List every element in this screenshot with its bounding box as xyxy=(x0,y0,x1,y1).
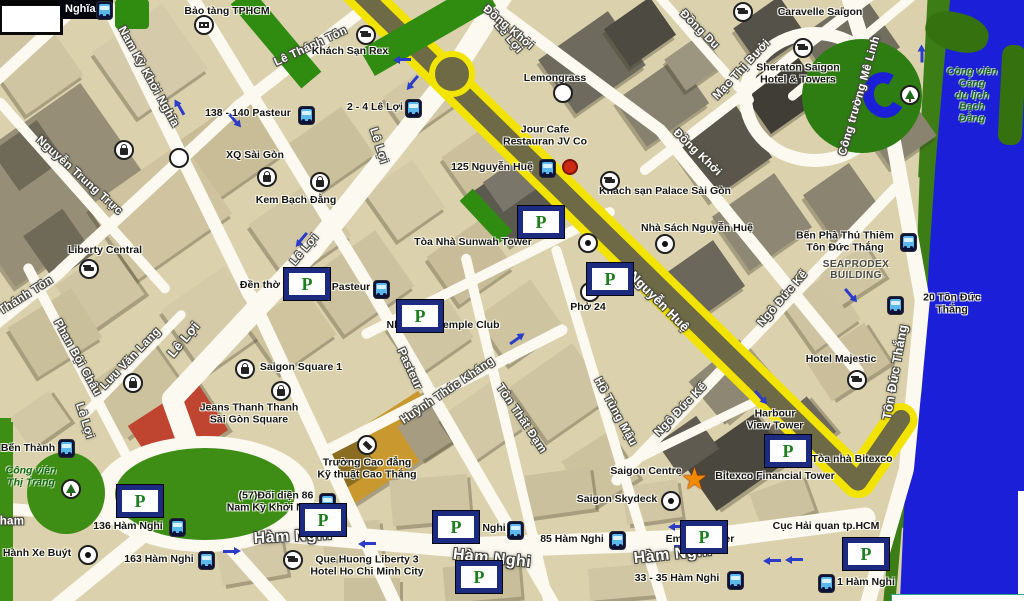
building xyxy=(365,160,446,241)
poi-label: Tòa nhà Bitexco xyxy=(811,454,892,466)
street-label: Thánh Tôn xyxy=(0,274,55,317)
one-way-arrow xyxy=(754,389,764,400)
road-ton-duc-thang xyxy=(884,132,930,308)
street-label: Nguyễn Huệ xyxy=(626,269,692,335)
bus-stop-icon[interactable] xyxy=(818,574,835,593)
bus-stop-icon[interactable] xyxy=(405,99,422,118)
one-way-arrow xyxy=(177,103,186,115)
poi-label: XQ Sài Gòn xyxy=(226,150,284,162)
street-label: Lê Lợi xyxy=(366,127,390,166)
shore-strip-3 xyxy=(891,382,929,528)
poi-label: Liberty Central xyxy=(68,245,142,257)
building xyxy=(483,156,541,212)
bus-stop-icon[interactable] xyxy=(900,233,917,252)
street-label: Công trường Mê Linh xyxy=(837,35,883,158)
poi-label: Khách sạn Palace Sài Gòn xyxy=(599,186,731,198)
building xyxy=(749,475,815,530)
parking-marker[interactable]: P xyxy=(587,263,633,295)
bus-stop-name-pill[interactable]: Nghĩa xyxy=(60,0,101,19)
parking-marker[interactable]: P xyxy=(433,511,479,543)
building xyxy=(510,343,610,441)
building xyxy=(8,288,102,377)
building xyxy=(441,124,518,200)
bus-stop-icon[interactable] xyxy=(198,551,215,570)
poi-label: 1 Hàm Nghi xyxy=(837,577,895,589)
road-ton-duc-thang xyxy=(898,293,930,478)
one-way-arrow xyxy=(399,58,411,61)
parking-glyph: P xyxy=(451,518,462,536)
one-way-arrow xyxy=(409,74,419,85)
road-nguyen-hue-core xyxy=(846,406,914,494)
street-label: Ngô Đức Kế xyxy=(652,381,710,440)
building xyxy=(689,339,776,424)
parking-marker[interactable]: P xyxy=(300,504,346,536)
road-le-thanh-ton xyxy=(232,0,403,113)
parking-marker[interactable]: P xyxy=(456,561,502,593)
le-loi-median-green xyxy=(231,0,322,88)
building xyxy=(0,5,83,115)
road-tran-hung-dao xyxy=(48,528,150,601)
far-bank-green-2 xyxy=(997,44,1024,145)
one-way-arrow xyxy=(791,558,803,561)
one-way-arrow xyxy=(298,231,308,242)
parking-glyph: P xyxy=(861,545,872,563)
building xyxy=(344,578,400,601)
bus-stop-icon[interactable] xyxy=(507,521,524,540)
green-strip-left xyxy=(0,418,11,446)
street-label: Pasteur xyxy=(394,346,424,392)
poi-label: Khách Sạn Rex xyxy=(312,46,388,58)
building xyxy=(863,96,936,167)
street-label: Tôn Thất Đạm xyxy=(493,382,549,456)
poi-label: 136 Hàm Nghi xyxy=(93,521,162,533)
green-strip-left xyxy=(0,422,13,601)
road-ngo-duc-ke xyxy=(609,181,903,488)
one-way-arrow xyxy=(364,542,376,545)
road-nguyen-hue-core xyxy=(343,0,870,494)
street-label: Nam Kỳ Khởi Nghĩa xyxy=(115,24,181,129)
parking-marker[interactable]: P xyxy=(518,206,564,238)
map-canvas[interactable]: Nam Kỳ Khởi NghĩaLê Thánh TônThánh TônNg… xyxy=(0,0,1024,601)
building xyxy=(712,173,812,271)
bus-stop-icon[interactable] xyxy=(96,1,113,20)
road-le-loi xyxy=(159,388,211,485)
road-hai-trieu xyxy=(612,386,780,474)
poi-label: Nghi xyxy=(482,523,505,535)
street-label: Đồng Khởi xyxy=(670,127,724,179)
bus-stop-icon[interactable] xyxy=(58,439,75,458)
hotel-icon[interactable] xyxy=(600,171,620,191)
road-le-loi xyxy=(158,238,324,414)
building xyxy=(588,563,657,601)
poi-label: Tòa Nhà Sunwah Tower xyxy=(414,237,532,249)
building xyxy=(161,266,270,375)
parking-marker[interactable]: P xyxy=(843,538,889,570)
parking-glyph: P xyxy=(783,442,794,460)
park-label: Công viên Thị Trang xyxy=(6,465,57,489)
road-le-thanh-ton xyxy=(52,97,248,280)
street-label: ham xyxy=(0,516,24,529)
poi-label: Saigon Square 1 xyxy=(260,362,342,374)
road-le-loi xyxy=(296,60,466,266)
dot-icon[interactable] xyxy=(655,234,675,254)
hotel-icon[interactable] xyxy=(283,550,303,570)
parking-glyph: P xyxy=(415,307,426,325)
road-huynh-thuc-khang xyxy=(321,323,569,457)
poi-label: 163 Hàm Nghi xyxy=(124,554,193,566)
hotel-icon[interactable] xyxy=(847,370,867,390)
building xyxy=(249,180,352,280)
poi-label: Saigon Centre xyxy=(610,466,681,478)
building xyxy=(476,279,563,364)
grad-icon[interactable] xyxy=(357,435,377,455)
tree-icon[interactable] xyxy=(61,479,81,499)
one-way-arrow xyxy=(223,550,235,553)
poi-label: Bitexco Financial Tower xyxy=(715,471,834,483)
poi-label: Lemongrass xyxy=(524,73,586,85)
poi-label: Saigon Skydeck xyxy=(577,494,658,506)
poi-label: 20 Tôn Đức Thắng xyxy=(916,292,988,316)
road-le-loi xyxy=(438,0,526,88)
red-poi-icon[interactable] xyxy=(562,159,578,175)
bag-icon[interactable] xyxy=(257,167,277,187)
building xyxy=(739,50,825,134)
small-park-green xyxy=(115,0,149,29)
park-label: Công viên Cảng du lịch Bạch Đằng xyxy=(946,67,998,126)
road-ton-duc-thang xyxy=(857,461,915,601)
one-way-arrow xyxy=(509,335,521,344)
road-ton-that-dam xyxy=(460,252,556,601)
poi-label: Pasteur xyxy=(332,282,371,294)
road-ham-nghi xyxy=(460,529,710,559)
poi-label: Phở 24 xyxy=(570,302,605,314)
le-loi-median-green xyxy=(360,0,496,76)
building xyxy=(803,163,881,241)
building xyxy=(672,103,772,201)
street-label: Tôn Đức Thắng xyxy=(880,323,911,420)
building xyxy=(783,273,861,351)
bus-stop-icon[interactable] xyxy=(727,571,744,590)
building xyxy=(664,33,723,91)
road-nguyen-hue-yellow xyxy=(835,396,924,504)
street-label: Đồng Du xyxy=(677,8,721,52)
dot-icon[interactable] xyxy=(78,545,98,565)
far-bank-green-1 xyxy=(921,5,993,58)
bus-stop-icon[interactable] xyxy=(298,106,315,125)
poi-label: 2 - 4 Lê Lợi xyxy=(347,102,403,114)
bus-stop-icon[interactable] xyxy=(373,280,390,299)
bag-icon[interactable] xyxy=(123,373,143,393)
dot-icon[interactable] xyxy=(661,491,681,511)
poi-label: Que Huong Liberty 3 Hotel Ho Chi Minh Ci… xyxy=(310,554,423,578)
parking-glyph: P xyxy=(605,270,616,288)
white-sliver-artifact xyxy=(1018,491,1024,601)
parking-glyph: P xyxy=(302,275,313,293)
poi-label: Bến Phà Thủ Thiêm Tôn Đức Thắng xyxy=(796,230,894,254)
poi-label: Caravelle Saigon xyxy=(778,7,863,19)
restaurant-icon[interactable] xyxy=(169,148,189,168)
bag-icon[interactable] xyxy=(271,381,291,401)
street-label: Lê Lợi xyxy=(491,20,525,56)
bag-icon[interactable] xyxy=(114,140,134,160)
building xyxy=(397,402,458,462)
street-label: Huỳnh Thúc Kháng xyxy=(399,355,498,427)
museum-icon[interactable] xyxy=(194,15,214,35)
poi-label: SEAPRODEX BUILDING xyxy=(823,259,889,281)
nguyen-hue-median-green xyxy=(460,189,513,244)
building xyxy=(426,219,513,304)
poi-label: Hotel Majestic xyxy=(806,354,877,366)
street-label: Ngô Đức Kế xyxy=(755,269,810,330)
street-label: Phan Bội Châu xyxy=(51,317,104,398)
parking-marker[interactable]: P xyxy=(397,300,443,332)
road-mac-thi-buoi xyxy=(638,0,891,177)
building xyxy=(0,83,155,287)
bag-icon[interactable] xyxy=(310,172,330,192)
shore-strip-2 xyxy=(912,165,940,396)
hotel-icon[interactable] xyxy=(79,259,99,279)
building xyxy=(659,240,745,324)
road-pasteur xyxy=(177,0,378,296)
building xyxy=(561,431,638,508)
road-nam-ky-khoi-nghia xyxy=(242,287,409,601)
cao-thang-college-building xyxy=(319,391,451,506)
street-label: Lê Thánh Tôn xyxy=(272,24,349,69)
road-ben-thanh-west xyxy=(0,502,118,523)
building xyxy=(524,467,595,518)
parking-glyph: P xyxy=(536,213,547,231)
street-label: Lê Lợi xyxy=(72,402,96,441)
saigon-square-red-building xyxy=(128,381,228,474)
bus-stop-icon[interactable] xyxy=(169,518,186,537)
parking-marker[interactable]: P xyxy=(765,435,811,467)
bus-stop-icon[interactable] xyxy=(887,296,904,315)
road-dong-khoi xyxy=(652,122,866,380)
building xyxy=(56,247,145,334)
shore-strip-1 xyxy=(918,0,952,178)
dot-icon[interactable] xyxy=(578,233,598,253)
star-icon[interactable]: ★ xyxy=(681,465,708,495)
building xyxy=(92,3,208,117)
me-linh-roundabout-ring xyxy=(739,27,891,167)
poi-label: Bến Thành xyxy=(1,443,55,455)
parking-marker[interactable]: P xyxy=(117,485,163,517)
street-label: Đồng Khởi xyxy=(480,3,536,53)
saigon-river xyxy=(845,0,1024,601)
road-luu-van-lang xyxy=(79,308,188,420)
parking-glyph: P xyxy=(474,568,485,586)
poi-label: Cục Hải quan tp.HCM xyxy=(773,521,880,533)
poi-label: Trường Cao đẳng Kỹ thuật Cao Thắng xyxy=(317,457,416,481)
bottom-band-artifact xyxy=(891,594,1024,601)
hotel-icon[interactable] xyxy=(733,2,753,22)
building xyxy=(800,0,900,91)
building xyxy=(216,539,287,586)
parking-glyph: P xyxy=(318,511,329,529)
poi-label: Đền thờ xyxy=(240,280,280,292)
street-label: Nguyễn Trung Trực xyxy=(33,134,124,218)
bus-stop-icon[interactable] xyxy=(609,531,626,550)
poi-label: Jeans Thanh Thanh Sài Gòn Square xyxy=(200,402,299,426)
parking-glyph: P xyxy=(135,492,146,510)
bus-stop-icon[interactable] xyxy=(539,159,556,178)
poi-label: Kem Bạch Đằng xyxy=(256,195,337,207)
poi-label: Sheraton Saigon Hotel & Towers xyxy=(756,62,839,86)
hotel-majestic-building xyxy=(806,323,891,401)
building xyxy=(615,57,709,146)
one-way-arrow xyxy=(844,287,854,298)
hotel-icon[interactable] xyxy=(356,25,376,45)
roundabout xyxy=(429,51,475,97)
one-way-arrow xyxy=(769,559,781,562)
parking-marker[interactable]: P xyxy=(284,268,330,300)
poi-label: 138 - 140 Pasteur xyxy=(205,108,291,120)
one-way-arrow xyxy=(921,50,924,62)
poi-label: 33 - 35 Hàm Nghi xyxy=(635,573,720,585)
road-le-lai xyxy=(0,8,74,96)
building xyxy=(440,381,525,464)
building xyxy=(88,141,233,279)
poi-label: Nhà Sách Nguyễn Huệ xyxy=(641,223,753,235)
poi-label: 85 Hàm Nghi xyxy=(540,534,604,546)
hotel-icon[interactable] xyxy=(793,38,813,58)
parking-glyph: P xyxy=(699,528,710,546)
one-way-arrow xyxy=(228,112,238,123)
road-dong-khoi xyxy=(457,0,668,138)
poi-label: 125 Nguyễn Huệ xyxy=(451,162,533,174)
tree-icon[interactable] xyxy=(900,85,920,105)
street-label: Hồ Tùng Mậu xyxy=(591,376,639,449)
street-label: Lê Lợi xyxy=(165,319,203,360)
restaurant-icon[interactable] xyxy=(553,83,573,103)
bag-icon[interactable] xyxy=(235,359,255,379)
building xyxy=(604,0,676,67)
poi-label: Jour Cafe Restauran JV Co xyxy=(503,124,587,148)
road-pasteur xyxy=(362,280,568,601)
road-le-thanh-ton xyxy=(0,264,68,340)
poi-label: Harbour View Tower xyxy=(747,408,804,432)
white-box-artifact xyxy=(0,3,63,35)
road-ton-duc-thang xyxy=(836,0,902,149)
street-label: Mạc Thị Bưởi xyxy=(711,37,773,103)
parking-marker[interactable]: P xyxy=(681,521,727,553)
poi-label: Hành Xe Buýt xyxy=(3,548,71,560)
building xyxy=(0,120,64,191)
